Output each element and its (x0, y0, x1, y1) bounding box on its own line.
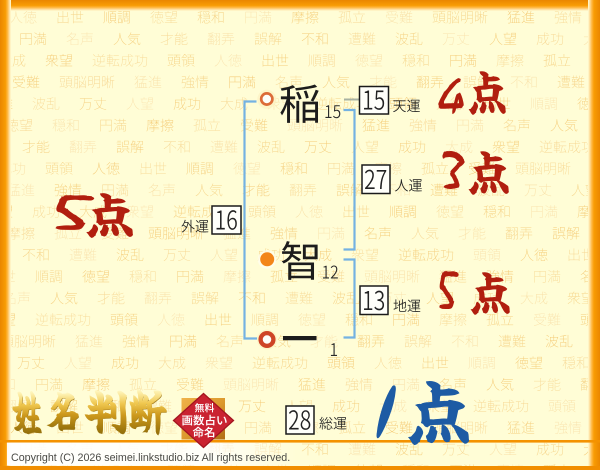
svg-text:Copyright (C) 2026 seimei.link: Copyright (C) 2026 seimei.linkstudio.biz… (11, 452, 290, 464)
